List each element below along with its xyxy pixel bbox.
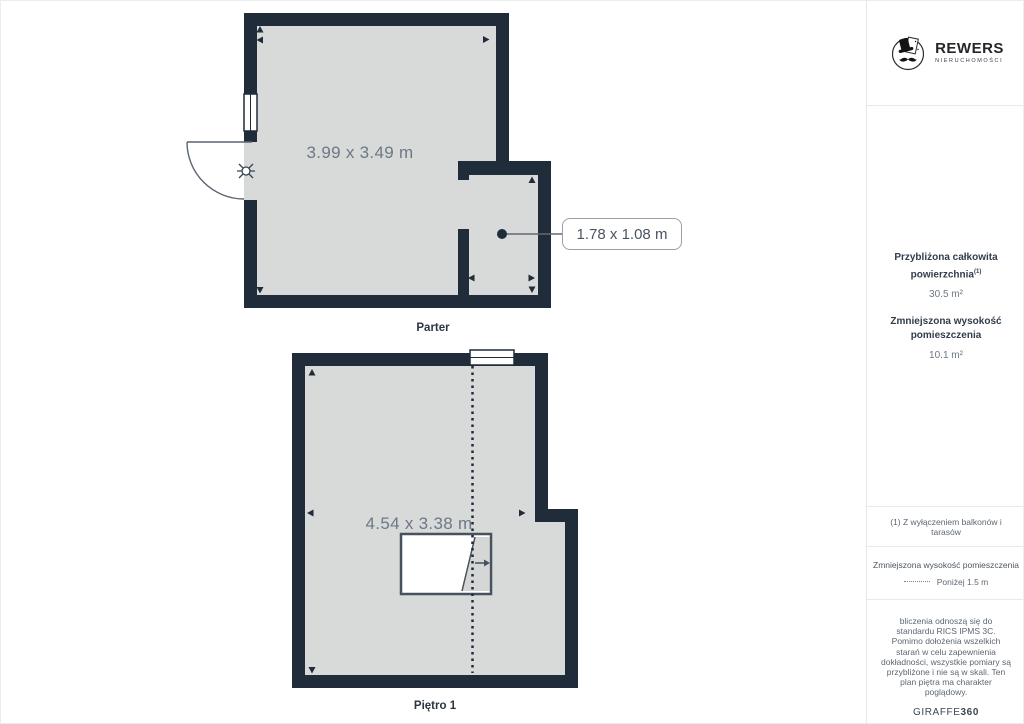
logo-title: REWERS <box>935 41 1004 56</box>
parter-callout: 1.78 x 1.08 m <box>562 218 682 250</box>
total-area-heading: Przybliżona całkowita powierzchnia(1) <box>877 251 1015 282</box>
reduced-height-value: 10.1 m² <box>929 350 963 361</box>
legend-item-label: Poniżej 1.5 m <box>937 577 989 587</box>
logo: REWERS NIERUCHOMOŚCI <box>867 1 1024 106</box>
disclaimer-text: bliczenia odnoszą się do standardu RICS … <box>880 616 1012 698</box>
callout-dimension-label: 1.78 x 1.08 m <box>577 226 668 243</box>
floor-label-pietro: Piętro 1 <box>375 700 495 712</box>
window-icon <box>470 350 514 365</box>
floor-area <box>535 522 565 675</box>
dashed-line-swatch <box>904 581 930 582</box>
logo-subtitle: NIERUCHOMOŚCI <box>935 59 1004 65</box>
sidebar: REWERS NIERUCHOMOŚCI Przybliżona całkowi… <box>866 1 1024 724</box>
legend-item: Poniżej 1.5 m <box>904 577 989 587</box>
giraffe360-brand-regular: GIRAFFE <box>913 707 961 718</box>
window-icon <box>244 94 257 131</box>
legend-title: Zmniejszona wysokość pomieszczenia <box>873 560 1019 570</box>
footnote: (1) Z wyłączeniem balkonów i tarasów <box>867 507 1024 547</box>
disclaimer-section: bliczenia odnoszą się do standardu RICS … <box>867 600 1024 724</box>
floorplan-page: 3.99 x 3.49 m 1.78 x 1.08 m Parter 4.54 … <box>0 0 1024 724</box>
floor-area <box>458 161 538 295</box>
parter-dimension-label: 3.99 x 3.49 m <box>260 143 460 163</box>
rewers-logo-icon <box>888 33 928 73</box>
total-area-footnote-marker: (1) <box>974 269 981 275</box>
total-area-value: 30.5 m² <box>929 289 963 300</box>
total-area-heading-text: Przybliżona całkowita powierzchnia <box>894 252 997 280</box>
stairs-icon <box>401 534 491 594</box>
pietro-dimension-label: 4.54 x 3.38 m <box>319 514 519 534</box>
area-summary-section: Przybliżona całkowita powierzchnia(1) 30… <box>867 106 1024 507</box>
giraffe360-brand-bold: 360 <box>961 707 980 718</box>
legend-section: Zmniejszona wysokość pomieszczenia Poniż… <box>867 547 1024 600</box>
reduced-height-heading: Zmniejszona wysokość pomieszczenia <box>877 315 1015 343</box>
floor-label-parter: Parter <box>373 322 493 334</box>
giraffe360-brand: GIRAFFE360 <box>880 707 1012 718</box>
